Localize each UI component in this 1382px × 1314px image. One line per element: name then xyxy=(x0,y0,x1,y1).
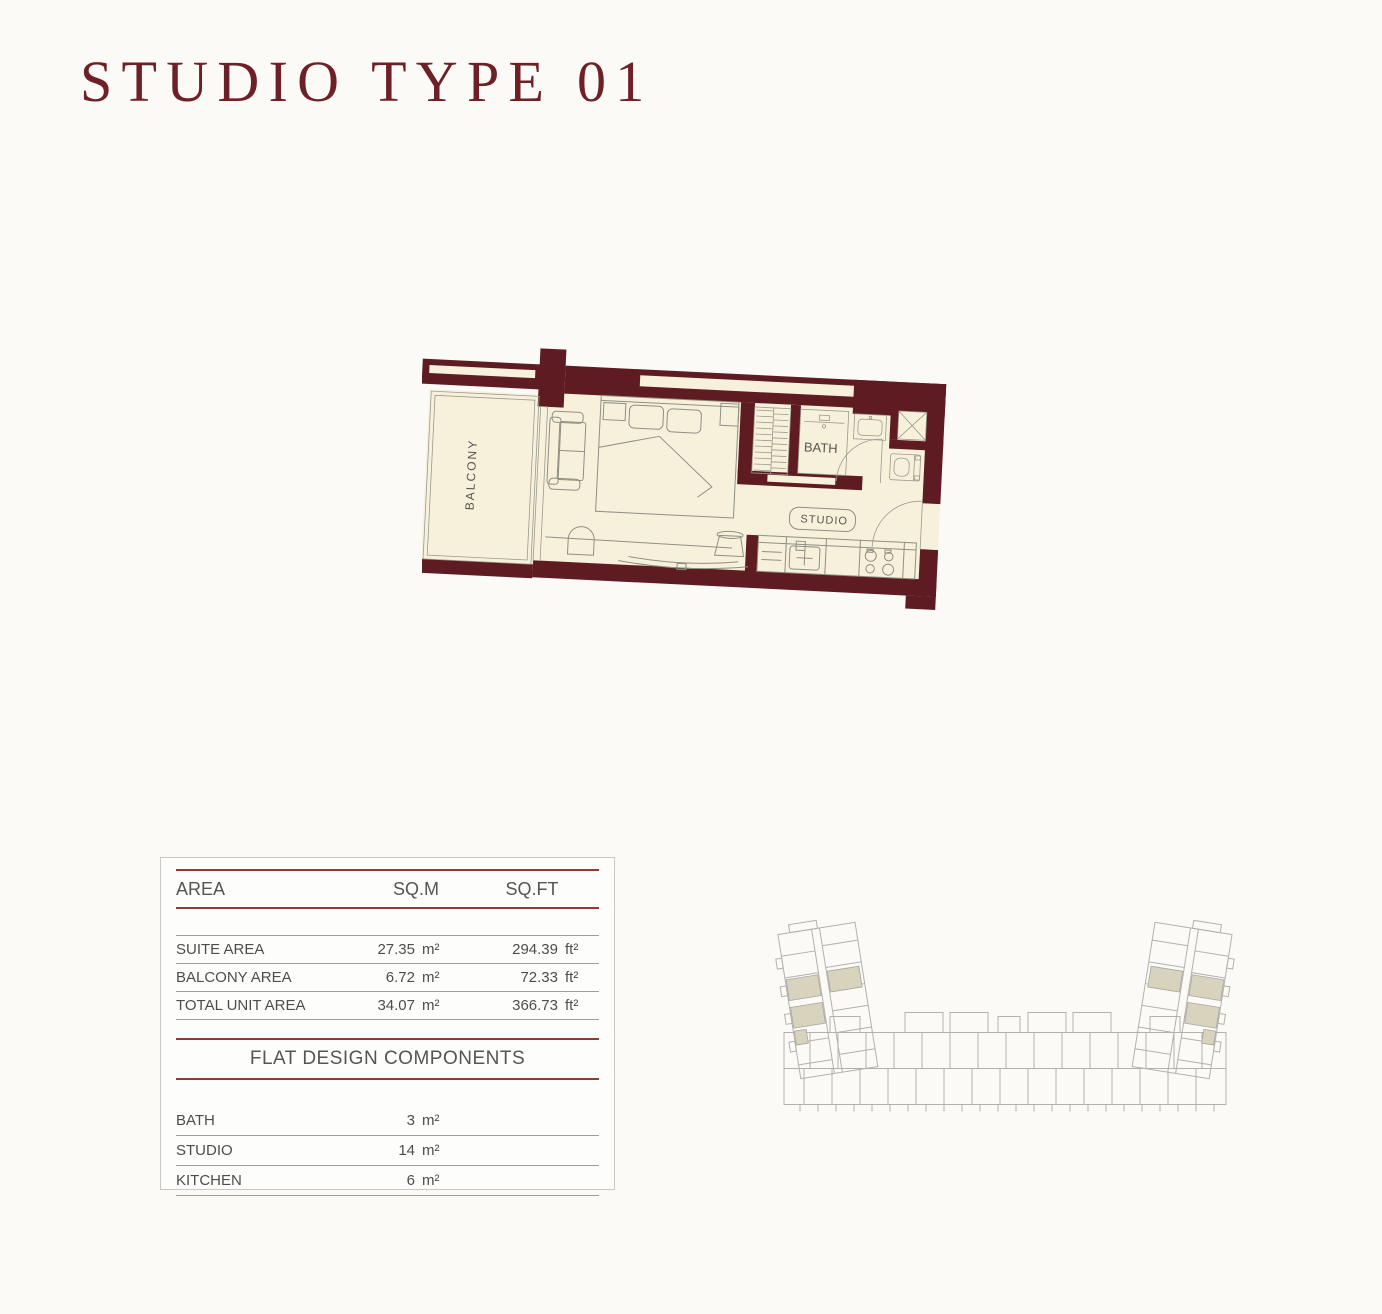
row-sqm-unit: m² xyxy=(415,997,458,1014)
header-area: AREA xyxy=(176,879,367,900)
row-sqm: 27.35 xyxy=(353,941,415,958)
divider xyxy=(176,1195,599,1196)
bath-label: BATH xyxy=(804,439,838,456)
row-label: SUITE AREA xyxy=(176,941,353,958)
highlighted-unit xyxy=(827,966,862,992)
key-plan-bottom-slab xyxy=(784,1013,1226,1112)
component-row-kitchen: KITCHEN 6 m² xyxy=(176,1166,599,1195)
key-plan-svg xyxy=(770,918,1240,1128)
row-sqft-unit: ft² xyxy=(558,941,599,958)
floor-plan-group: BALCONY xyxy=(422,344,947,610)
row-sqm: 34.07 xyxy=(353,997,415,1014)
row-unit: m² xyxy=(415,1172,458,1189)
floor-plan-svg: BALCONY xyxy=(422,344,967,629)
table-row-total-unit-area: TOTAL UNIT AREA 34.07 m² 366.73 ft² xyxy=(176,992,599,1019)
highlighted-unit xyxy=(791,1002,826,1028)
floor-plan-figure: BALCONY xyxy=(422,344,967,629)
row-label: TOTAL UNIT AREA xyxy=(176,997,353,1014)
area-table-header: AREA SQ.M SQ.FT xyxy=(176,871,599,907)
row-label: BATH xyxy=(176,1112,353,1129)
highlighted-unit xyxy=(1185,1002,1220,1028)
row-label: STUDIO xyxy=(176,1142,353,1159)
row-unit: m² xyxy=(415,1112,458,1129)
highlighted-unit xyxy=(1189,975,1224,1001)
row-label: BALCONY AREA xyxy=(176,969,353,986)
row-sqft: 72.33 xyxy=(458,969,558,986)
highlighted-unit xyxy=(786,975,821,1001)
component-row-bath: BATH 3 m² xyxy=(176,1106,599,1135)
row-sqft: 294.39 xyxy=(458,941,558,958)
key-plan-left-wing xyxy=(771,918,878,1080)
table-row-suite-area: SUITE AREA 27.35 m² 294.39 ft² xyxy=(176,936,599,963)
key-plan-right-wing xyxy=(1132,918,1239,1080)
row-label: KITCHEN xyxy=(176,1172,353,1189)
building-key-plan xyxy=(770,918,1240,1128)
components-title: FLAT DESIGN COMPONENTS xyxy=(176,1040,599,1078)
table-row-balcony-area: BALCONY AREA 6.72 m² 72.33 ft² xyxy=(176,964,599,991)
row-sqm-unit: m² xyxy=(415,969,458,986)
highlighted-unit xyxy=(1148,966,1183,992)
studio-label: STUDIO xyxy=(800,513,848,527)
page-title: STUDIO TYPE 01 xyxy=(80,48,654,115)
header-sqm: SQ.M xyxy=(367,879,465,900)
row-value: 6 xyxy=(353,1172,415,1189)
row-sqm-unit: m² xyxy=(415,941,458,958)
balcony-floor xyxy=(422,389,541,566)
row-sqm: 6.72 xyxy=(353,969,415,986)
row-value: 14 xyxy=(353,1142,415,1159)
row-unit: m² xyxy=(415,1142,458,1159)
row-sqft-unit: ft² xyxy=(558,997,599,1014)
highlighted-unit xyxy=(1202,1029,1216,1045)
area-table-card: AREA SQ.M SQ.FT SUITE AREA 27.35 m² 294.… xyxy=(160,857,615,1190)
row-sqft-unit: ft² xyxy=(558,969,599,986)
component-row-studio: STUDIO 14 m² xyxy=(176,1136,599,1165)
highlighted-unit xyxy=(794,1029,808,1045)
row-sqft: 366.73 xyxy=(458,997,558,1014)
header-sqft: SQ.FT xyxy=(465,879,599,900)
service-shaft xyxy=(897,411,926,440)
row-value: 3 xyxy=(353,1112,415,1129)
